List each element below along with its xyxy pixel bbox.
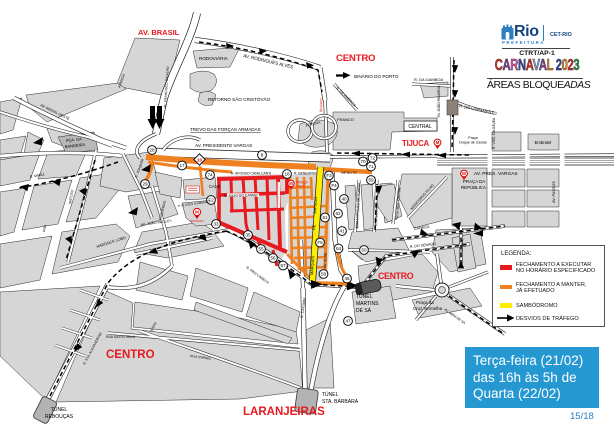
svg-text:33: 33 (213, 222, 219, 227)
svg-text:R. DO LIVRAMENTO: R. DO LIVRAMENTO (459, 103, 497, 116)
svg-text:29: 29 (142, 182, 148, 187)
svg-text:57: 57 (280, 263, 286, 268)
svg-text:MARTINS: MARTINS (356, 301, 379, 307)
svg-text:CENTRAL: CENTRAL (408, 124, 432, 130)
svg-text:R. BENEDITO: R. BENEDITO (294, 172, 316, 176)
svg-text:AV. PASSOS: AV. PASSOS (552, 181, 556, 203)
svg-text:BINÁRIO: BINÁRIO (319, 98, 323, 112)
svg-text:17: 17 (179, 163, 185, 168)
svg-text:REPÚBLICA: REPÚBLICA (461, 185, 486, 190)
svg-text:40: 40 (341, 197, 347, 202)
svg-text:71: 71 (368, 164, 374, 169)
svg-text:F4: F4 (331, 183, 337, 188)
svg-text:RETORNO SÃO CRISTÓVÃO: RETORNO SÃO CRISTÓVÃO (208, 96, 271, 102)
svg-text:64: 64 (336, 246, 342, 251)
svg-text:CASS: CASS (209, 184, 221, 189)
svg-text:LARANJEIRAS: LARANJEIRAS (243, 406, 325, 418)
svg-text:41: 41 (339, 229, 345, 234)
svg-text:M: M (195, 210, 199, 215)
svg-text:FRANCO: FRANCO (337, 117, 354, 122)
svg-text:R. FREI CANECA: R. FREI CANECA (245, 266, 270, 286)
svg-text:CENTRO: CENTRO (378, 271, 414, 281)
svg-text:28: 28 (149, 148, 155, 153)
svg-text:R. DA GAMBOA: R. DA GAMBOA (414, 77, 443, 82)
svg-text:F5: F5 (317, 240, 323, 245)
svg-text:RUA DA ESTRELA: RUA DA ESTRELA (106, 335, 136, 339)
svg-text:74: 74 (207, 173, 213, 178)
svg-text:PRAÇA DA: PRAÇA DA (463, 179, 485, 184)
svg-text:35: 35 (245, 233, 251, 238)
svg-text:R. AFONSO CAVALCANTI: R. AFONSO CAVALCANTI (231, 172, 271, 176)
svg-text:18: 18 (284, 172, 290, 177)
svg-text:TN. JOÃO RICARDO: TN. JOÃO RICARDO (436, 85, 441, 118)
svg-text:TIJUCA: TIJUCA (402, 139, 430, 148)
svg-text:M: M (289, 181, 293, 186)
svg-text:F3: F3 (326, 173, 332, 178)
svg-text:TREVO DAS FORÇAS ARMADAS: TREVO DAS FORÇAS ARMADAS (190, 127, 261, 132)
svg-text:DE: DE (312, 224, 316, 230)
svg-text:REBOUÇAS: REBOUÇAS (45, 414, 74, 420)
svg-text:DE SÁ: DE SÁ (356, 307, 372, 314)
svg-text:AV. PRES. VARGAS: AV. PRES. VARGAS (474, 171, 518, 177)
svg-text:59: 59 (368, 178, 374, 183)
svg-text:Duque de Caxias: Duque de Caxias (459, 141, 487, 145)
svg-text:Cruz Vermelha: Cruz Vermelha (413, 306, 443, 311)
svg-text:R. DA AMÉRICA: R. DA AMÉRICA (335, 85, 357, 108)
svg-text:Praça: Praça (468, 136, 477, 140)
svg-text:ESTÁCIO: ESTÁCIO (190, 219, 204, 223)
svg-text:R. VISC. DA GÁVEA: R. VISC. DA GÁVEA (492, 117, 496, 149)
svg-text:CENTRO: CENTRO (336, 53, 376, 64)
svg-text:R. JÚLIO DO CARMO: R. JÚLIO DO CARMO (224, 192, 258, 198)
svg-text:61: 61 (322, 215, 328, 220)
svg-text:TÚNEL: TÚNEL (51, 406, 68, 413)
svg-text:TÚNEL: TÚNEL (322, 391, 339, 398)
svg-text:50: 50 (361, 248, 367, 253)
svg-text:AV. BRASIL: AV. BRASIL (138, 28, 180, 37)
svg-text:RUA SANTANA: RUA SANTANA (374, 201, 379, 226)
svg-text:CENTRO: CENTRO (106, 349, 155, 361)
svg-text:55: 55 (258, 247, 264, 252)
svg-text:62: 62 (335, 211, 341, 216)
svg-text:BINÁRIO DO PORTO: BINÁRIO DO PORTO (354, 73, 399, 79)
svg-text:46: 46 (344, 276, 350, 281)
svg-text:56: 56 (270, 256, 276, 261)
svg-text:Embratel: Embratel (535, 140, 552, 145)
svg-text:Praça da: Praça da (416, 300, 434, 305)
svg-text:10: 10 (197, 157, 203, 162)
svg-text:58: 58 (321, 272, 327, 277)
svg-text:M: M (436, 140, 440, 145)
svg-text:70: 70 (360, 159, 366, 164)
svg-text:AV. PRESIDENTE VARGAS: AV. PRESIDENTE VARGAS (195, 143, 252, 148)
svg-text:47: 47 (345, 319, 351, 324)
svg-text:72: 72 (370, 156, 376, 161)
svg-text:RODOVIÁRIA: RODOVIÁRIA (199, 55, 229, 61)
svg-text:HIPÓLITO: HIPÓLITO (341, 170, 357, 175)
svg-text:M: M (462, 171, 466, 176)
svg-text:AV. 31 DE: AV. 31 DE (323, 252, 328, 268)
svg-text:TÚNEL: TÚNEL (356, 293, 373, 300)
svg-text:STA. BÁRBARA: STA. BÁRBARA (322, 398, 359, 405)
svg-text:ONZE: ONZE (296, 185, 306, 189)
svg-text:8: 8 (261, 153, 264, 158)
